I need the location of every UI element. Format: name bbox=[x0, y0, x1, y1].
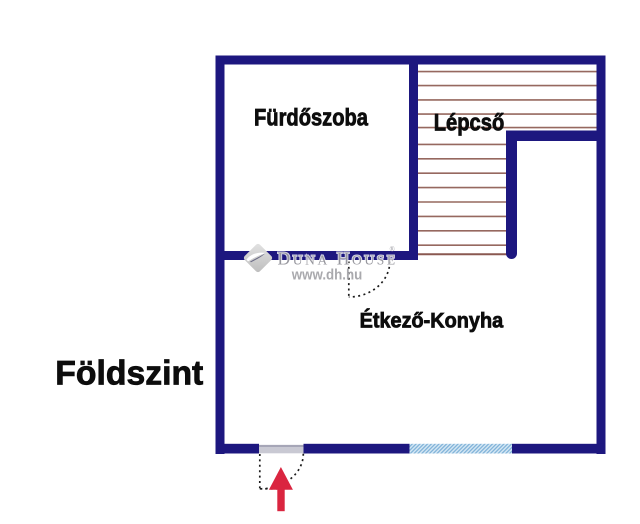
svg-text:Földszint: Földszint bbox=[55, 354, 203, 392]
svg-text:Étkező-Konyha: Étkező-Konyha bbox=[360, 309, 504, 332]
svg-text:Lépcső: Lépcső bbox=[434, 109, 505, 136]
svg-text:®: ® bbox=[390, 246, 396, 254]
svg-text:Fürdőszoba: Fürdőszoba bbox=[254, 105, 369, 132]
svg-text:www.dh.hu: www.dh.hu bbox=[291, 267, 362, 283]
